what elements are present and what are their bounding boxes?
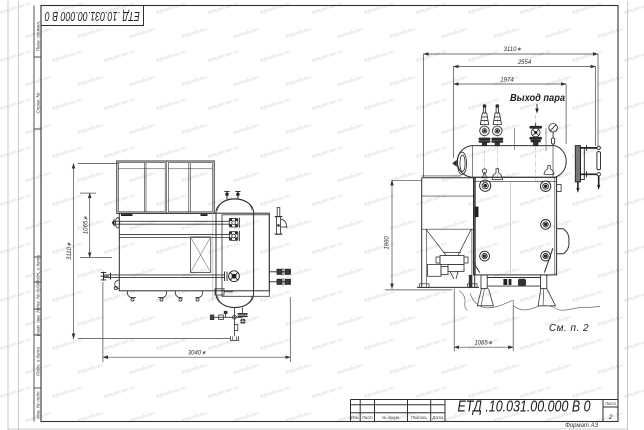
svg-text:2: 2	[608, 414, 613, 421]
svg-text:2554: 2554	[517, 60, 532, 66]
svg-text:3110∗: 3110∗	[504, 47, 522, 53]
svg-text:Инв. № дубл.: Инв. № дубл.	[36, 281, 41, 309]
svg-text:Выход пара: Выход пара	[510, 92, 565, 104]
svg-text:№ докум.: № докум.	[382, 415, 400, 420]
svg-text:Лист: Лист	[604, 401, 616, 406]
svg-text:ЕТД .10.031.00.000 В 0: ЕТД .10.031.00.000 В 0	[458, 399, 591, 416]
svg-text:Подп. и дата: Подп. и дата	[36, 347, 41, 376]
svg-text:См. п. 2: См. п. 2	[549, 323, 589, 334]
svg-text:Перв. примен.: Перв. примен.	[35, 21, 40, 52]
svg-text:3040∗: 3040∗	[188, 351, 206, 357]
svg-text:1065∗: 1065∗	[83, 216, 89, 234]
svg-text:Подп. и дата: Подп. и дата	[36, 255, 41, 284]
svg-text:3110∗: 3110∗	[67, 242, 73, 260]
svg-text:Справ. №: Справ. №	[35, 93, 40, 114]
svg-text:Взам. инв. №: Взам. инв. №	[36, 308, 41, 336]
svg-text:1960: 1960	[384, 236, 390, 250]
svg-text:Лист: Лист	[361, 415, 373, 420]
svg-text:ЕТД .10.031.00.000 В 0: ЕТД .10.031.00.000 В 0	[44, 9, 140, 24]
svg-text:1065∗: 1065∗	[474, 341, 492, 347]
svg-text:Инв. № подл.: Инв. № подл.	[36, 390, 41, 419]
svg-text:Формат А3: Формат А3	[565, 423, 598, 429]
svg-text:Дата: Дата	[431, 415, 444, 420]
svg-text:Подпись: Подпись	[411, 415, 428, 420]
svg-text:Изм.: Изм.	[351, 415, 360, 420]
svg-text:1974: 1974	[500, 78, 514, 84]
